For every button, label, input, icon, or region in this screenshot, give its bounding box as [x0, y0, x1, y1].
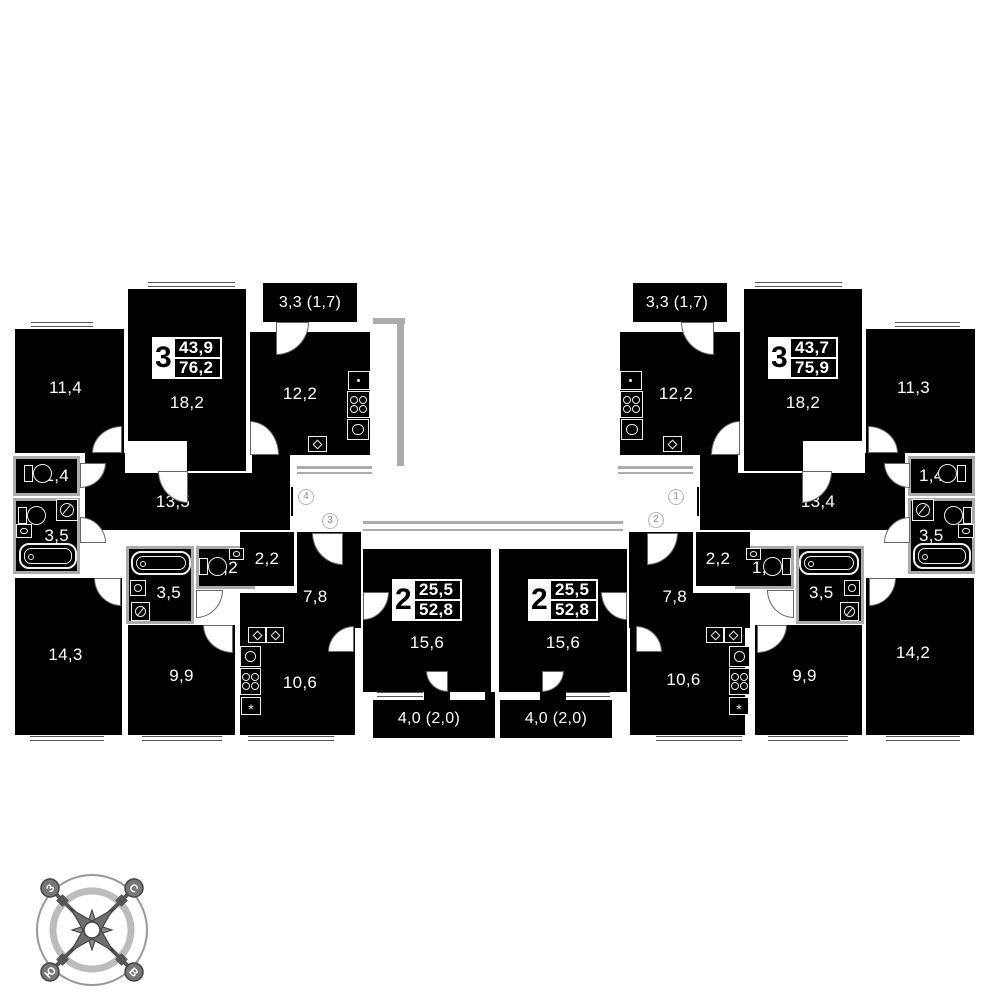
bathtub-icon [799, 551, 859, 575]
toilet-icon [24, 463, 51, 483]
bathtub-icon [19, 543, 77, 569]
window-marker [656, 736, 742, 741]
living-area-value: 43,9 [175, 339, 220, 359]
burner-star-icon [241, 697, 261, 715]
room-area-label: 2,2 [255, 549, 280, 569]
apartment-rooms-count: 2 [392, 579, 415, 621]
room-area-label: 7,8 [662, 587, 687, 607]
bathtub-icon [131, 551, 191, 575]
burners-icon [620, 391, 643, 418]
toilet-icon [764, 556, 791, 576]
landing-edge [297, 466, 372, 474]
window-marker [30, 736, 104, 741]
total-area-value: 75,9 [791, 359, 836, 377]
room-area-label: 9,9 [169, 666, 194, 686]
toilet-icon [199, 556, 226, 576]
sink-icon [229, 548, 244, 560]
sink-icon [347, 419, 369, 440]
balcony-3-3-right: 3,3 (1,7) [633, 283, 727, 322]
apartment-info-badge: 2 25,552,8 [528, 579, 598, 621]
storage-2-2-left: 2,2 [240, 532, 294, 586]
room-area-label: 4,0 (2,0) [525, 710, 587, 728]
unit-number: 1 [668, 489, 684, 505]
window-marker [148, 282, 235, 287]
stair-core-wall [397, 318, 404, 466]
sink-icon [729, 646, 750, 667]
room-area-label: 14,2 [896, 643, 930, 663]
burner-star-icon [729, 697, 749, 715]
cabinet-icon [266, 627, 284, 643]
apartment-rooms-count: 3 [152, 337, 175, 379]
entry-door-leaf [697, 487, 699, 516]
apartment-areas: 43,976,2 [175, 337, 222, 379]
room-area-label: 15,6 [546, 633, 580, 653]
apartment-rooms-count: 2 [528, 579, 551, 621]
washing-machine-icon [912, 499, 934, 521]
room-area-label: 7,8 [303, 587, 328, 607]
room-area-label: 14,3 [48, 645, 82, 665]
window-marker [768, 736, 848, 741]
room-area-label: 9,9 [792, 666, 817, 686]
cabinet-icon [724, 627, 742, 643]
burners-icon [347, 391, 370, 418]
washing-machine-icon [840, 602, 859, 621]
window-marker [31, 322, 93, 327]
cabinet-icon [706, 627, 724, 643]
window-marker [142, 736, 222, 741]
window-marker [895, 322, 960, 327]
room-area-label: 18,2 [786, 393, 820, 413]
room-area-label: 3,5 [156, 583, 181, 603]
balcony-4-0-right: 4,0 (2,0) [500, 700, 612, 738]
door-opening [803, 441, 864, 471]
entry-door-leaf [291, 487, 293, 516]
cabinet-icon [308, 436, 327, 452]
sink-icon [746, 548, 761, 560]
total-area-value: 52,8 [415, 601, 460, 619]
apartment-rooms-count: 3 [768, 337, 791, 379]
washing-machine-icon [56, 499, 78, 521]
room-area-label: 3,3 (1,7) [646, 294, 708, 312]
window-marker [566, 692, 610, 697]
landing-edge [618, 466, 693, 474]
window-marker [755, 282, 842, 287]
apartment-info-badge: 2 25,552,8 [392, 579, 462, 621]
toilet-icon [939, 463, 966, 483]
sink-icon [240, 646, 261, 667]
bathtub-icon [913, 543, 971, 569]
cabinet-icon [663, 436, 682, 452]
room-area-label: 10,6 [283, 673, 317, 693]
toilet-icon [945, 505, 972, 525]
room-area-label: 12,2 [283, 384, 317, 404]
balcony-3-3-left: 3,3 (1,7) [263, 283, 357, 322]
room-area-label: 3,5 [809, 583, 834, 603]
sink-icon [621, 419, 643, 440]
burners-icon [729, 668, 750, 695]
stove-icon [348, 371, 370, 390]
room-area-label: 10,6 [666, 670, 700, 690]
total-area-value: 76,2 [175, 359, 220, 377]
sink-icon [844, 580, 860, 596]
total-area-value: 52,8 [551, 601, 596, 619]
compass-rose: З С Ю В [32, 870, 152, 990]
storage-2-2-right: 2,2 [696, 532, 750, 586]
door-opening [126, 441, 187, 471]
room-area-label: 3,3 (1,7) [279, 294, 341, 312]
living-area-value: 43,7 [791, 339, 836, 359]
room-area-label: 4,0 (2,0) [398, 710, 460, 728]
room-area-label: 11,4 [49, 378, 82, 398]
sink-icon [16, 524, 32, 538]
hallway-wall-segment [240, 593, 297, 628]
balcony-divider-wall [485, 692, 495, 738]
floor-plan: 11,4 3 43,976,2 18,2 3,3 (1,7) 12,2 13,5… [0, 0, 1000, 1000]
sink-icon [958, 524, 974, 538]
apartment-areas: 25,552,8 [551, 579, 598, 621]
door-arc [767, 590, 794, 618]
hallway-wall-segment [693, 593, 750, 628]
burners-icon [240, 668, 261, 695]
sink-icon [130, 580, 146, 596]
stove-icon [620, 371, 642, 390]
room-area-label: 12,2 [659, 384, 693, 404]
window-marker [248, 736, 334, 741]
unit-number: 2 [648, 512, 664, 528]
living-area-value: 25,5 [415, 581, 460, 601]
room-area-label: 11,3 [897, 378, 930, 398]
balcony-4-0-left: 4,0 (2,0) [373, 700, 485, 738]
room-area-label: 2,2 [706, 549, 731, 569]
unit-number: 3 [322, 513, 338, 529]
washing-machine-icon [131, 602, 150, 621]
window-marker [377, 692, 423, 697]
living-area-value: 25,5 [551, 581, 596, 601]
apartment-info-badge: 3 43,775,9 [768, 337, 838, 379]
apartment-areas: 25,552,8 [415, 579, 462, 621]
door-arc [196, 590, 223, 618]
window-marker [886, 736, 960, 741]
toilet-icon [18, 505, 45, 525]
corridor-edge [363, 521, 623, 531]
room-area-label: 18,2 [170, 393, 204, 413]
room-area-label: 15,6 [410, 633, 444, 653]
apartment-info-badge: 3 43,976,2 [152, 337, 222, 379]
cabinet-icon [248, 627, 266, 643]
apartment-areas: 43,775,9 [791, 337, 838, 379]
unit-number: 4 [298, 489, 314, 505]
